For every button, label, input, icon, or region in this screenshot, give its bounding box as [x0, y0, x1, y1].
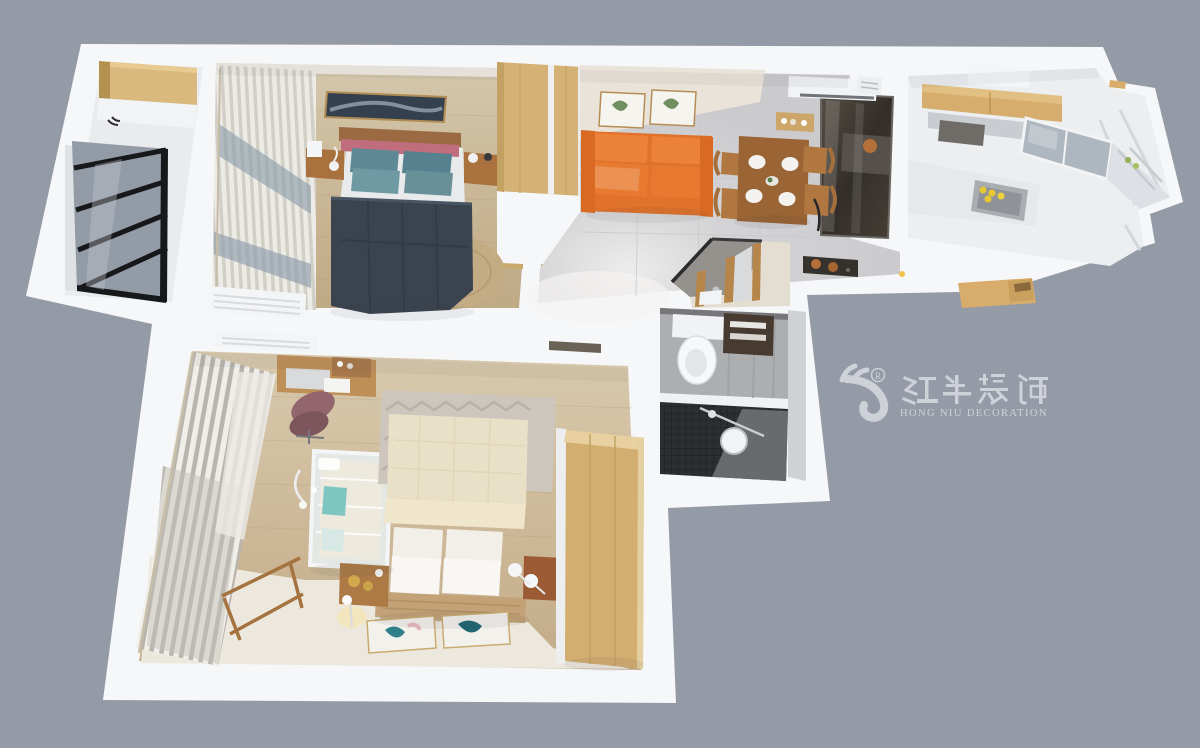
svg-text:HONG NIU DECORATION: HONG NIU DECORATION: [900, 408, 1048, 419]
svg-text:R: R: [875, 371, 881, 381]
